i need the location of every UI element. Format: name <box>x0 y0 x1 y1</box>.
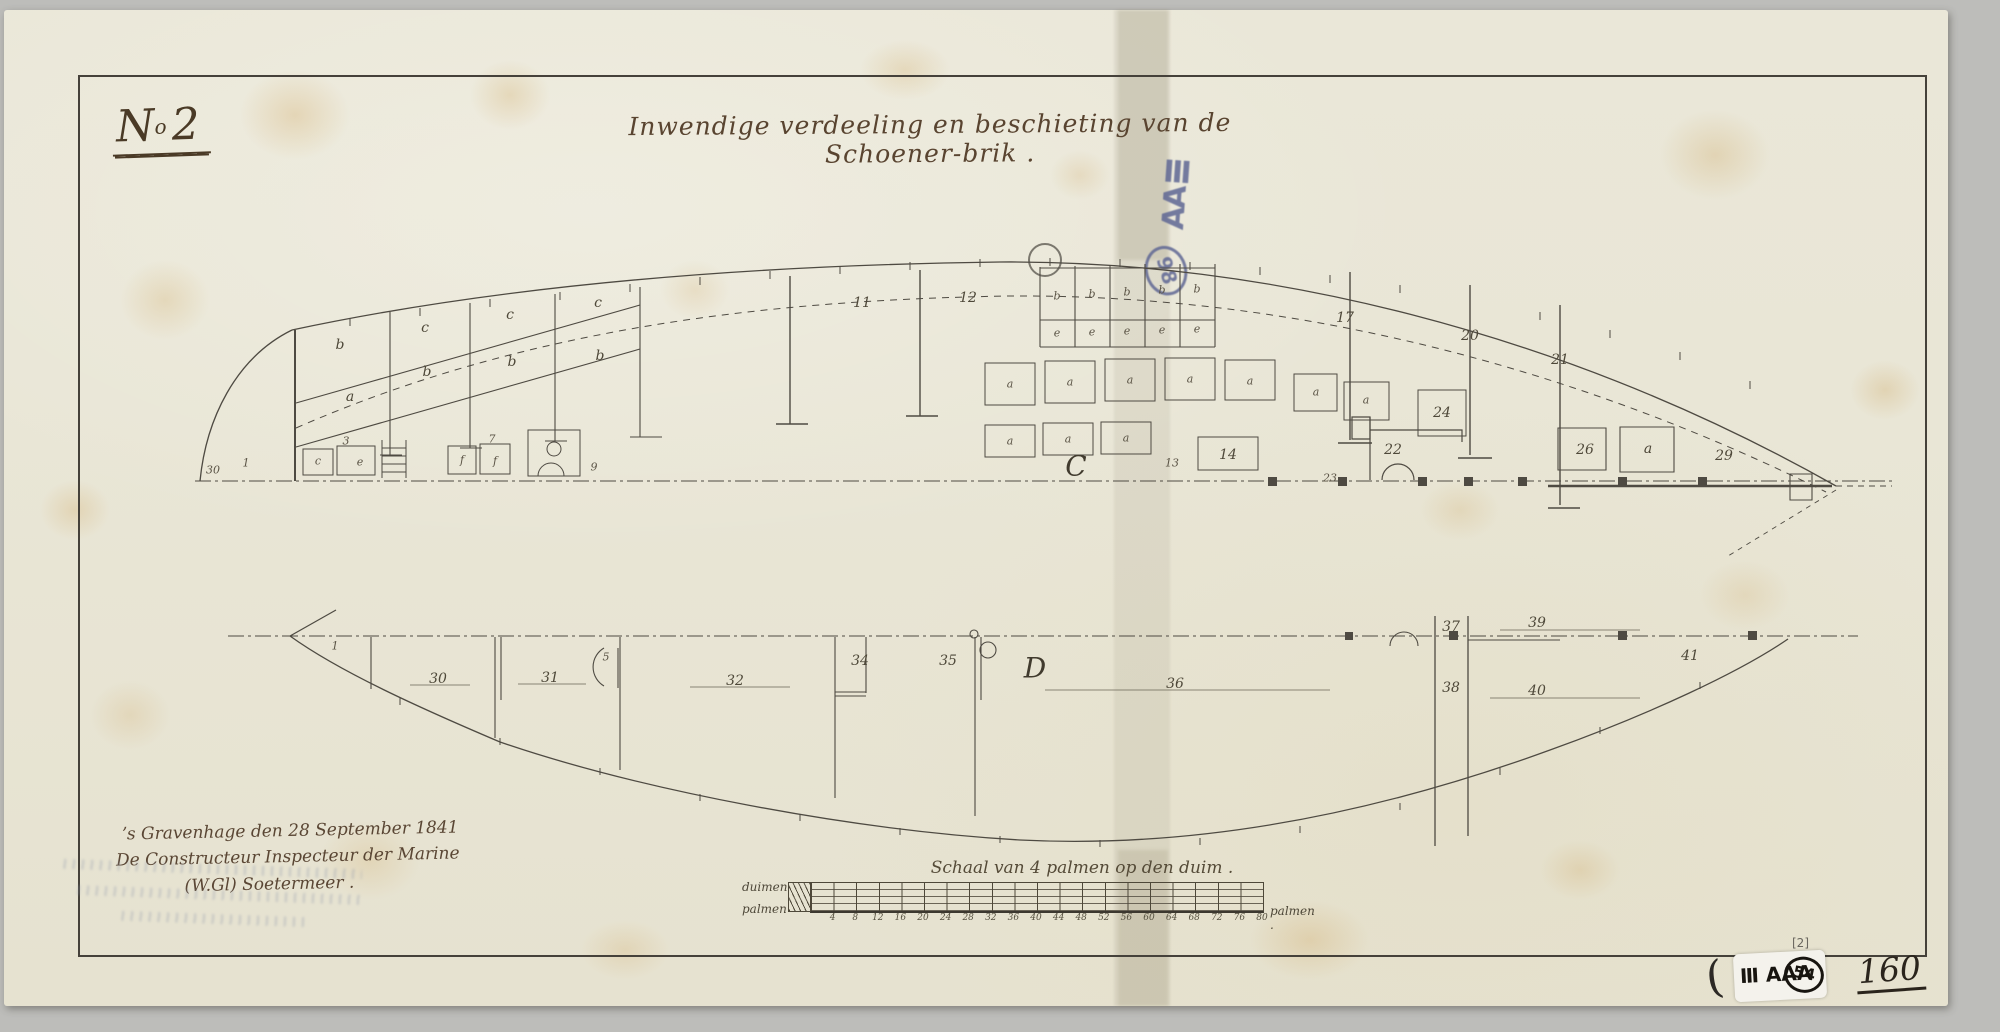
upper-hull-profile <box>195 258 1895 556</box>
scale-unit-palmen-left: palmen <box>742 902 787 916</box>
scale-tick-label: 44 <box>1053 913 1064 923</box>
scale-bar-fine-divisions <box>788 882 812 912</box>
scale-tick-label: 64 <box>1166 913 1177 923</box>
catalog-sticker-number: 54 <box>1781 953 1827 996</box>
scale-tick-label: 4 <box>830 913 836 923</box>
scale-tick-label: 16 <box>895 913 906 923</box>
scale-tick-label: 32 <box>985 913 996 923</box>
scale-tick-label: 60 <box>1143 913 1154 923</box>
scale-tick-label: 52 <box>1098 913 1109 923</box>
scale-tick-label: 76 <box>1234 913 1245 923</box>
scale-tick-label: 80 <box>1256 913 1267 923</box>
scale-tick-label: 68 <box>1188 913 1199 923</box>
scale-tick-label: 24 <box>940 913 951 923</box>
scale-tick-label: 36 <box>1008 913 1019 923</box>
scale-tick-label: 56 <box>1121 913 1132 923</box>
scale-tick-label: 8 <box>852 913 858 923</box>
scanned-drawing-sheet: No 2 Inwendige verdeeling en beschieting… <box>0 0 2000 1032</box>
scale-tick-label: 12 <box>872 913 883 923</box>
scale-bar-title: Schaal van 4 palmen op den duim . <box>892 858 1272 878</box>
scale-unit-duimen: duimen <box>742 880 787 894</box>
scale-tick-label: 40 <box>1030 913 1041 923</box>
scale-tick-label: 72 <box>1211 913 1222 923</box>
scale-tick-label: 48 <box>1075 913 1086 923</box>
scale-tick-label: 28 <box>962 913 973 923</box>
catalog-annotation: [2] <box>1792 936 1809 950</box>
catalog-sticker: Ⅲ AAA 54 <box>1733 950 1827 1003</box>
lower-hull-halfbreadth <box>228 610 1858 847</box>
scale-bar-tick-labels: 48121620242832364044485256606468727680 <box>810 913 1262 925</box>
folio-number: 160 <box>1855 948 1927 995</box>
scale-unit-palmen-right: palmen . <box>1270 904 1315 932</box>
scale-tick-label: 20 <box>917 913 928 923</box>
scale-bar-grid <box>810 882 1264 913</box>
